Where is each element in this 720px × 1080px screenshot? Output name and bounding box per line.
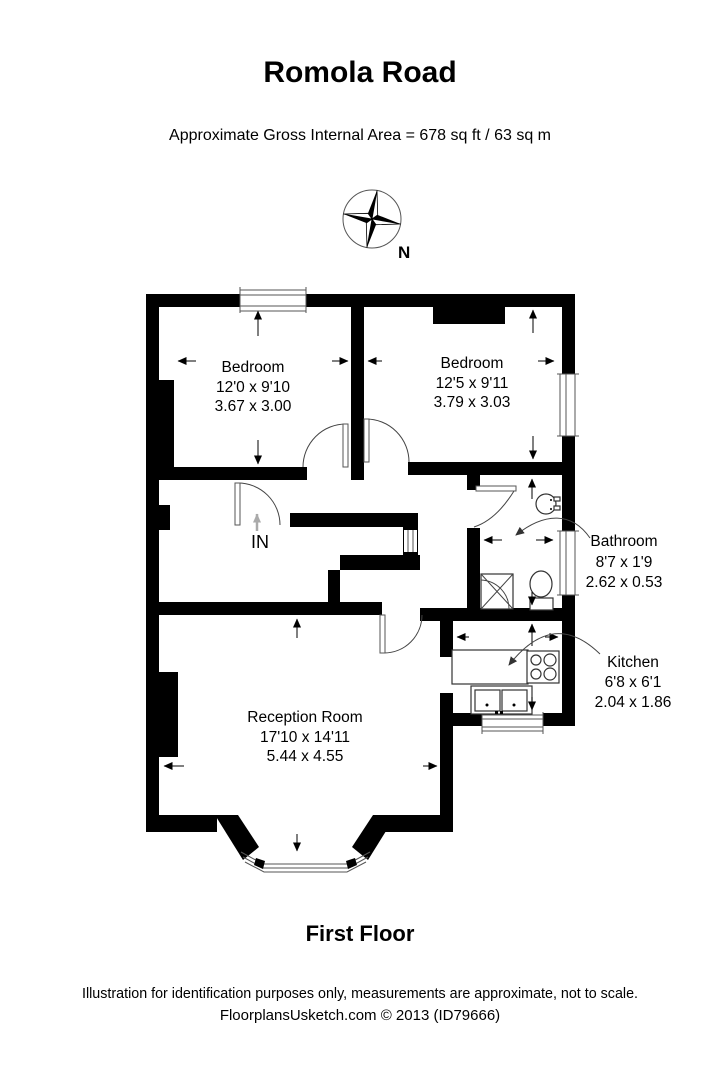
- reception-door: [380, 615, 422, 653]
- room-dim-imperial: 6'8 x 6'1: [605, 674, 662, 691]
- wall-segment: [146, 294, 575, 307]
- wall-segment: [351, 306, 364, 480]
- wall-segment: [159, 672, 178, 757]
- toilet: [530, 571, 553, 610]
- wall-segment: [340, 555, 420, 570]
- room-dim-imperial: 12'5 x 9'11: [436, 375, 509, 392]
- label-leaders: [509, 518, 600, 665]
- wall-segment: [290, 513, 403, 527]
- room-dim-metric: 3.79 x 3.03: [434, 394, 511, 411]
- bedroom-right-door: [364, 419, 409, 462]
- room-label-bedroom-left: Bedroom 12'0 x 9'10 3.67 x 3.00: [215, 359, 292, 415]
- compass-north-label: N: [398, 243, 410, 262]
- double-sink: [471, 686, 532, 714]
- room-dim-imperial: 12'0 x 9'10: [216, 379, 290, 396]
- bathroom-door: [474, 486, 516, 527]
- kitchen-counter: [452, 650, 528, 684]
- kitchen-window: [482, 712, 543, 734]
- bedroom-right-window: [557, 374, 579, 436]
- room-dim-imperial: 17'10 x 14'11: [260, 729, 350, 746]
- bay-pier-right: [352, 815, 396, 860]
- shower: [481, 574, 513, 609]
- bedroom-left-door: [303, 424, 348, 467]
- room-dim-metric: 5.44 x 4.55: [267, 748, 344, 765]
- compass-rose-icon: N: [343, 190, 410, 262]
- windows: [240, 287, 579, 872]
- hob: [527, 651, 559, 683]
- wall-segment: [408, 462, 562, 475]
- wall-segment: [433, 306, 505, 324]
- floor-plan-drawing: N: [0, 0, 720, 1080]
- room-name: Reception Room: [247, 709, 362, 726]
- floorplan-page: Romola Road Approximate Gross Internal A…: [0, 0, 720, 1080]
- room-name: Kitchen: [607, 654, 659, 671]
- wall-segment: [440, 621, 453, 657]
- wall-segment: [159, 467, 307, 480]
- room-name: Bathroom: [590, 533, 657, 550]
- wall-segment: [159, 380, 174, 467]
- room-label-reception: Reception Room 17'10 x 14'11 5.44 x 4.55: [247, 709, 362, 765]
- room-dim-imperial: 8'7 x 1'9: [596, 554, 653, 571]
- wall-segment: [146, 294, 159, 832]
- wall-segment: [562, 294, 575, 726]
- room-dim-metric: 2.04 x 1.86: [595, 694, 672, 711]
- bedroom-left-window: [240, 287, 306, 313]
- room-label-bedroom-right: Bedroom 12'5 x 9'11 3.79 x 3.03: [434, 355, 511, 411]
- wall-segment: [159, 602, 382, 615]
- room-label-kitchen: Kitchen 6'8 x 6'1 2.04 x 1.86: [595, 654, 672, 711]
- room-name: Bedroom: [222, 359, 285, 376]
- hall-internal-window: [404, 530, 417, 552]
- entrance-marker: IN: [251, 514, 269, 552]
- room-dim-metric: 2.62 x 0.53: [586, 574, 663, 591]
- basin: [536, 494, 560, 514]
- floor-label: First Floor: [0, 921, 720, 947]
- wall-segment: [146, 815, 217, 832]
- entrance-label: IN: [251, 532, 269, 552]
- room-name: Bedroom: [441, 355, 504, 372]
- bathroom-window: [557, 531, 579, 595]
- wall-segment: [159, 505, 170, 530]
- copyright-text: FloorplansUsketch.com © 2013 (ID79666): [0, 1007, 720, 1024]
- wall-segment: [467, 528, 480, 608]
- room-dim-metric: 3.67 x 3.00: [215, 398, 292, 415]
- room-label-bathroom: Bathroom 8'7 x 1'9 2.62 x 0.53: [586, 533, 663, 591]
- disclaimer-text: Illustration for identification purposes…: [0, 986, 720, 1002]
- bay-pier-left: [215, 815, 259, 860]
- bay-window: [241, 852, 370, 872]
